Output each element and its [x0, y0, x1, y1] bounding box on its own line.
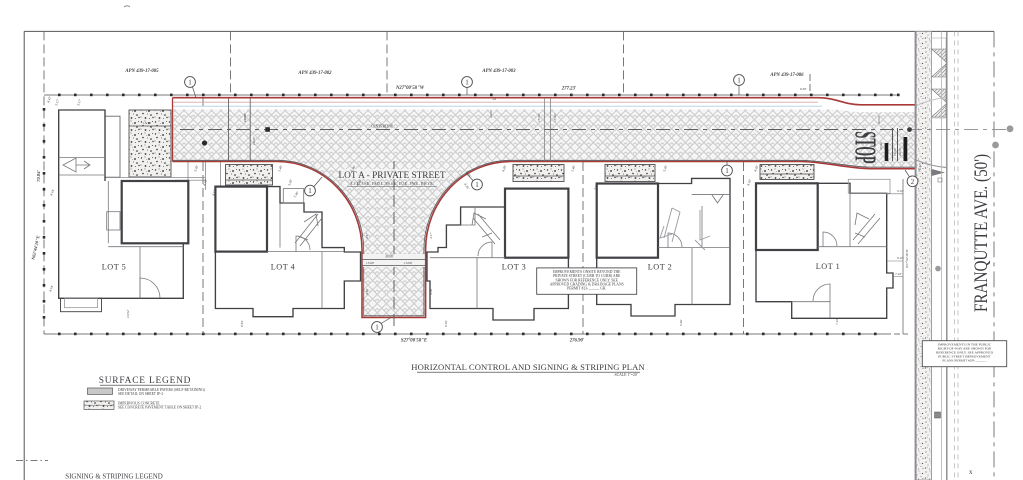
svg-text:5.46': 5.46': [679, 319, 683, 326]
svg-text:SEE CONCRETE PAVEMENT TABLE ON: SEE CONCRETE PAVEMENT TABLE ON SHEET IP-…: [118, 406, 201, 410]
svg-text:78.34': 78.34': [918, 163, 922, 172]
svg-text:STOP: STOP: [847, 131, 881, 163]
svg-text:10.00': 10.00': [893, 147, 897, 156]
svg-text:LOT 1: LOT 1: [816, 262, 840, 271]
svg-text:4.17': 4.17': [429, 232, 433, 239]
svg-text:PERMIT #23-______ GR.: PERMIT #23-______ GR.: [567, 287, 606, 291]
svg-text:PLANS PERMIT #2N-______.: PLANS PERMIT #2N-______.: [942, 359, 986, 363]
svg-text:1: 1: [737, 77, 741, 85]
svg-text:7.10': 7.10': [895, 272, 902, 276]
svg-text:8.39': 8.39': [240, 320, 244, 327]
svg-text:15.00': 15.00': [553, 113, 557, 122]
svg-text:1: 1: [725, 167, 729, 175]
svg-text:FRANQUTTE AVE. (50'): FRANQUTTE AVE. (50'): [971, 154, 992, 312]
svg-text:4.16': 4.16': [365, 288, 369, 295]
svg-text:15.36': 15.36': [143, 121, 152, 125]
svg-text:SEE DETAIL ON SHEET IP-2: SEE DETAIL ON SHEET IP-2: [118, 392, 163, 396]
svg-text:277.23': 277.23': [561, 87, 577, 92]
svg-text:1: 1: [475, 181, 479, 189]
svg-text:SCALE 1"=20': SCALE 1"=20': [614, 373, 637, 377]
svg-text:10.54': 10.54': [126, 309, 130, 318]
svg-text:15.00': 15.00': [537, 113, 541, 122]
svg-text:9.10': 9.10': [897, 256, 904, 260]
svg-text:HORIZONTAL CONTROL AND SIGNING: HORIZONTAL CONTROL AND SIGNING & STRIPIN…: [411, 362, 645, 372]
svg-text:2: 2: [911, 178, 915, 186]
svg-text:16.00': 16.00': [252, 136, 256, 145]
svg-text:276.90': 276.90': [569, 339, 585, 344]
svg-text:SURFACE LEGEND: SURFACE LEGEND: [99, 376, 192, 386]
svg-text:N27°00'58"W: N27°00'58"W: [395, 86, 425, 91]
svg-text:6.36': 6.36': [800, 87, 807, 91]
svg-text:20.00': 20.00': [898, 147, 902, 156]
svg-text:APN 439-17-002: APN 439-17-002: [297, 71, 332, 76]
svg-text:15.00': 15.00': [404, 261, 413, 265]
svg-text:LOT 2: LOT 2: [648, 263, 672, 272]
svg-text:20.00': 20.00': [489, 109, 493, 118]
svg-text:4.16': 4.16': [429, 288, 433, 295]
svg-text:30.00': 30.00': [385, 255, 394, 259]
svg-text:12: 12: [492, 96, 496, 101]
svg-text:1: 1: [188, 79, 192, 87]
svg-text:APN 439-17-006: APN 439-17-006: [769, 73, 804, 78]
svg-text:4.17': 4.17': [365, 232, 369, 239]
svg-text:APN 439-17-003: APN 439-17-003: [481, 69, 516, 74]
svg-text:LOT 4: LOT 4: [271, 263, 295, 272]
svg-text:70.84': 70.84': [36, 169, 41, 181]
svg-text:APN 439-17-005: APN 439-17-005: [124, 69, 159, 74]
svg-text:30.00': 30.00': [877, 115, 881, 124]
svg-text:LOT A - PRIVATE STREET: LOT A - PRIVATE STREET: [338, 171, 445, 181]
svg-text:10.00': 10.00': [243, 113, 247, 122]
svg-text:8.16': 8.16': [444, 320, 448, 327]
svg-text:S27°00'58"E: S27°00'58"E: [401, 339, 427, 344]
svg-text:SIGNING & STRIPING LEGEND: SIGNING & STRIPING LEGEND: [65, 474, 162, 480]
svg-text:7.10': 7.10': [835, 318, 839, 325]
svg-text:9.10': 9.10': [897, 189, 904, 193]
svg-text:N27°02'46"W: N27°02'46"W: [905, 248, 909, 269]
svg-text:15.00': 15.00': [366, 261, 375, 265]
svg-text:CENTERLINE: CENTERLINE: [371, 125, 394, 129]
svg-text:1: 1: [465, 79, 469, 87]
svg-text:LOT 5: LOT 5: [102, 263, 126, 272]
svg-text:LOT 3: LOT 3: [502, 263, 526, 272]
svg-text:x: x: [969, 468, 973, 476]
svg-text:25.00': 25.00': [879, 141, 883, 150]
svg-text:1: 1: [308, 187, 312, 195]
svg-text:1: 1: [375, 324, 379, 332]
